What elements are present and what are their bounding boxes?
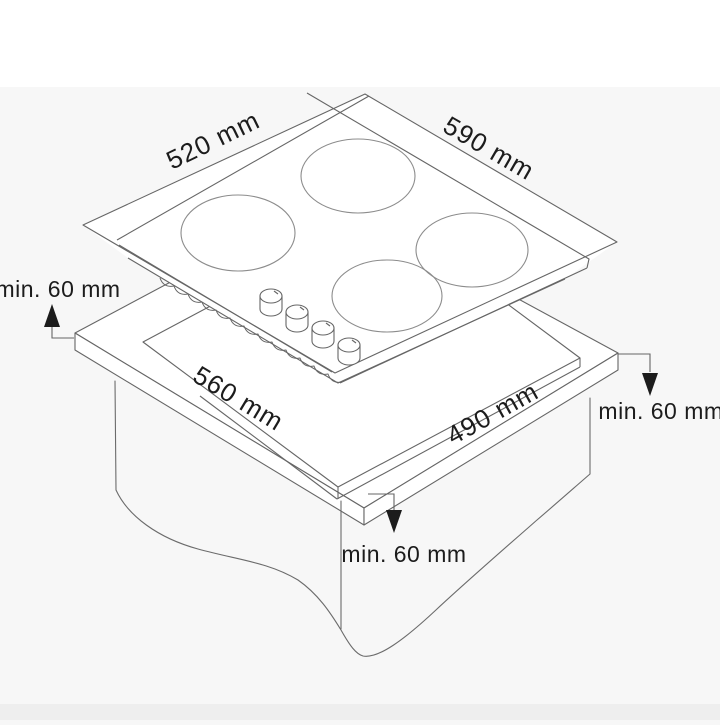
arrow-down-icon: [386, 510, 402, 533]
control-knob-3: [312, 321, 334, 348]
diagram-stage: 560 mm 490 mm: [0, 0, 720, 720]
clearance-left-leader: [52, 327, 74, 338]
clearance-right-leader: [618, 354, 650, 372]
control-knob-4: [338, 338, 360, 365]
control-knob-2: [286, 305, 308, 332]
hob-installation-diagram: 560 mm 490 mm: [0, 0, 720, 720]
control-knob-1: [260, 289, 282, 316]
arrow-down-icon: [642, 373, 658, 396]
clearance-right-label: min. 60 mm: [598, 398, 720, 424]
clearance-left-label: min. 60 mm: [0, 276, 121, 302]
arrow-up-icon: [44, 304, 60, 327]
clearance-front-label: min. 60 mm: [341, 541, 466, 567]
